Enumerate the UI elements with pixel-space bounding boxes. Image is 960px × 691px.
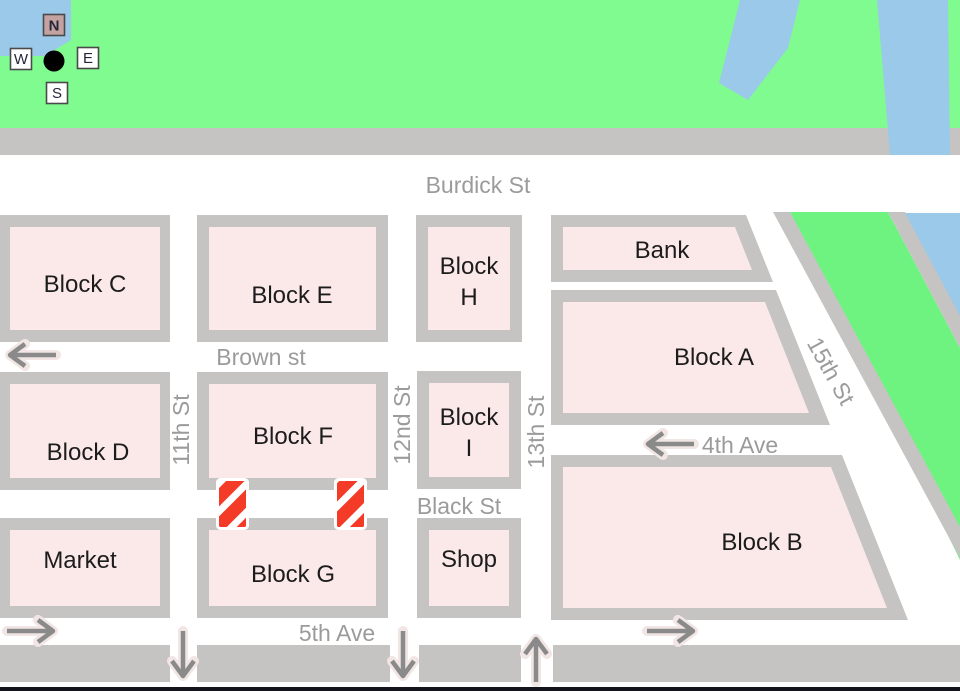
- arrow-down-twelfth-st: [392, 631, 414, 676]
- park-area: [0, 0, 960, 128]
- arrow-left-brown-st: [10, 344, 56, 366]
- bottom-street: [0, 645, 960, 691]
- compass-north-label: N: [49, 18, 60, 35]
- block-h-label-line2: H: [460, 284, 477, 311]
- market-label: Market: [43, 547, 117, 574]
- bottom-road-segment: [419, 645, 521, 682]
- block-i-label-line2: I: [466, 435, 473, 462]
- top-road: [0, 128, 960, 155]
- street-fourth-ave-label: 4th Ave: [702, 432, 778, 458]
- block-e-label: Block E: [251, 282, 332, 309]
- compass-east-label: E: [83, 50, 93, 67]
- bottom-road-segment: [553, 645, 960, 682]
- bottom-road-segment: [0, 645, 170, 682]
- block-h-label-line1: Block: [440, 253, 500, 280]
- bank-label: Bank: [635, 237, 691, 264]
- compass-center-dot: [44, 51, 65, 72]
- block-c-label: Block C: [44, 271, 127, 298]
- block-d-label: Block D: [47, 439, 130, 466]
- compass-south-label: S: [52, 85, 62, 102]
- arrow-right-fifth-ave-west: [7, 620, 53, 642]
- bottom-road-segment: [197, 645, 390, 682]
- construction-barrier-west: [218, 480, 248, 529]
- street-brown-label: Brown st: [216, 344, 306, 370]
- street-twelfth-label: 12nd St: [389, 385, 415, 465]
- shop-label: Shop: [441, 546, 497, 573]
- map-edge-line: [0, 687, 960, 691]
- arrow-right-fifth-ave-east: [647, 620, 693, 642]
- construction-barrier-east: [336, 480, 366, 529]
- street-eleventh-label: 11th St: [168, 394, 194, 466]
- block-a-label: Block A: [674, 344, 754, 371]
- block-i-label-line1: Block: [440, 404, 500, 431]
- block-e-fill: [209, 227, 376, 330]
- block-b-label: Block B: [721, 529, 802, 556]
- arrow-down-eleventh-st: [172, 631, 194, 676]
- block-f-label: Block F: [253, 423, 333, 450]
- street-black-label: Black St: [417, 493, 502, 519]
- arrow-left-fourth-ave: [648, 433, 694, 455]
- street-thirteenth-label: 13th St: [523, 395, 549, 468]
- city-map: Block C Block E Block H Bank Block A Blo…: [0, 0, 960, 691]
- block-g-label: Block G: [251, 561, 335, 588]
- street-burdick-label: Burdick St: [426, 172, 531, 198]
- street-fifth-ave-label: 5th Ave: [299, 620, 375, 646]
- compass-west-label: W: [14, 51, 29, 68]
